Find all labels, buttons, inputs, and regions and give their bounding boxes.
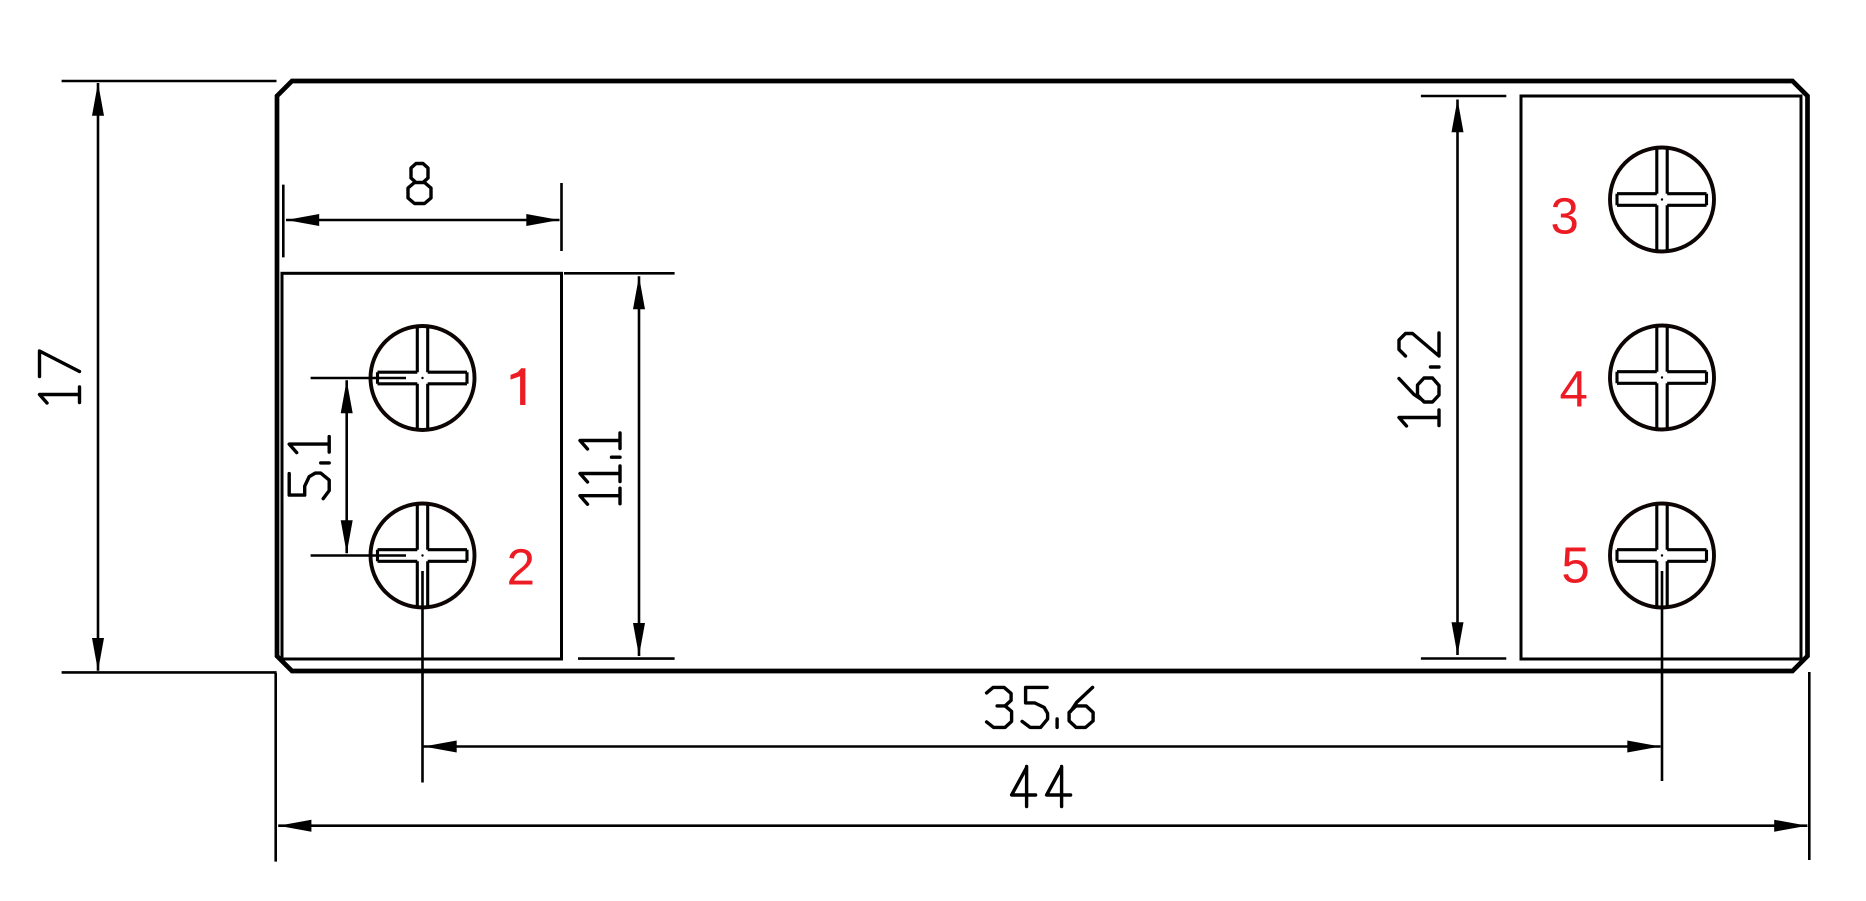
svg-text:5: 5 [1561, 537, 1589, 594]
svg-text:3: 3 [1551, 187, 1579, 244]
svg-text:4: 4 [1560, 361, 1588, 418]
svg-text:2: 2 [507, 539, 535, 596]
